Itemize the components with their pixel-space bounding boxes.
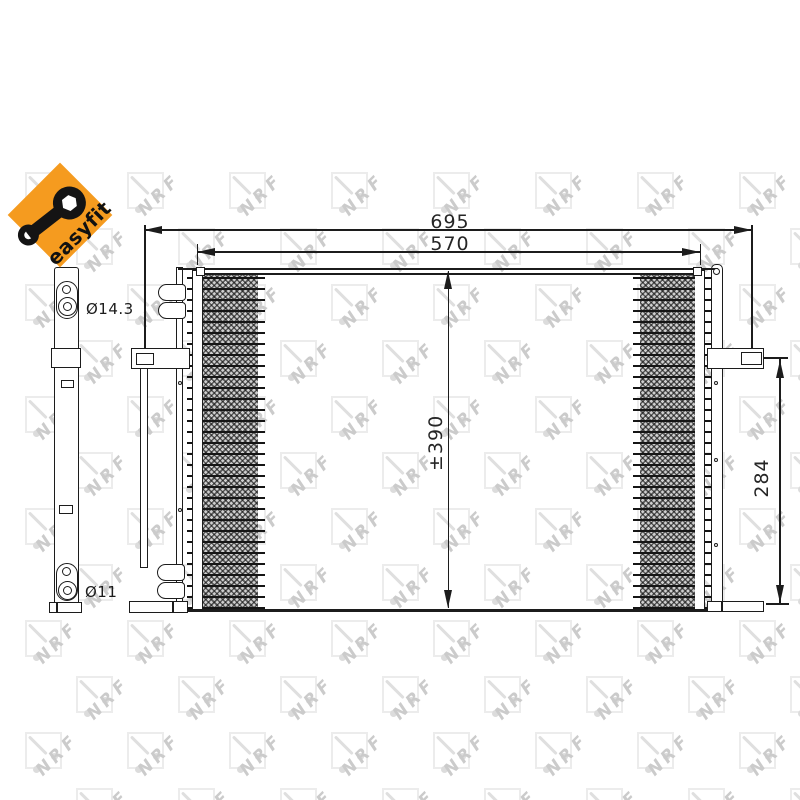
- dim-284-arrow-top: [776, 360, 784, 378]
- bracket-hole-right: [741, 352, 762, 365]
- dim-570-arrow-right: [682, 248, 700, 256]
- nrf-watermark-tile: N R F: [25, 620, 89, 676]
- dim-695-arrow-right: [734, 226, 752, 234]
- nrf-watermark-tile: N R F: [586, 788, 650, 800]
- nrf-watermark-tile: N R F: [280, 452, 344, 508]
- nrf-watermark-tile: N R F: [535, 508, 599, 564]
- dim-570-arrow-left: [197, 248, 215, 256]
- nrf-watermark-tile: N R F: [484, 564, 548, 620]
- nrf-watermark-tile: N R F: [484, 228, 548, 284]
- nrf-watermark-tile: N R F: [280, 228, 344, 284]
- nrf-watermark-tile: N R F: [790, 452, 800, 508]
- nrf-watermark-tile: N R F: [535, 620, 599, 676]
- nrf-watermark-tile: N R F: [739, 396, 800, 452]
- side-view-slot-upper: [61, 380, 74, 388]
- nrf-watermark-tile: N R F: [484, 340, 548, 396]
- nrf-watermark-tile: N R F: [331, 172, 395, 228]
- nrf-watermark-tile: N R F: [535, 284, 599, 340]
- nrf-watermark-tile: N R F: [688, 676, 752, 732]
- dim-284-ref-top: [763, 357, 788, 359]
- dim-695-extension-right: [751, 225, 753, 353]
- left-pipe: [140, 368, 148, 568]
- nrf-watermark-tile: N R F: [433, 620, 497, 676]
- nrf-watermark-tile: N R F: [484, 452, 548, 508]
- tube-weld-dot: [178, 381, 182, 385]
- end-cap-left: [196, 267, 205, 276]
- nrf-watermark-tile: N R F: [790, 228, 800, 284]
- dim-line-390: [448, 271, 450, 608]
- inlet-port-upper: [158, 284, 186, 301]
- nrf-watermark-tile: N R F: [790, 788, 800, 800]
- nrf-watermark-tile: N R F: [331, 284, 395, 340]
- core-bottom-edge: [178, 609, 718, 612]
- nrf-watermark-tile: N R F: [331, 620, 395, 676]
- nrf-watermark-tile: N R F: [229, 172, 293, 228]
- side-plate-right: [694, 270, 705, 611]
- nrf-watermark-tile: N R F: [331, 508, 395, 564]
- nrf-watermark-tile: N R F: [229, 732, 293, 788]
- dim-570-tick-right: [700, 244, 702, 265]
- drier-weld-dot: [714, 458, 718, 462]
- inlet-port-lower: [158, 302, 186, 319]
- nrf-watermark-tile: N R F: [76, 676, 140, 732]
- nrf-watermark-tile: N R F: [739, 620, 800, 676]
- dim-570-tick-left: [197, 244, 199, 265]
- bottom-port-diameter-label: Ø11: [85, 583, 117, 601]
- dim-line-284: [779, 359, 781, 604]
- foot-right-step: [721, 601, 723, 612]
- dim-695-arrow-left: [144, 226, 162, 234]
- dim-284-ref-bottom: [766, 603, 789, 605]
- core-top-edge: [178, 268, 718, 270]
- nrf-watermark-tile: N R F: [382, 788, 446, 800]
- nrf-watermark-tile: N R F: [280, 564, 344, 620]
- nrf-watermark-tile: N R F: [331, 396, 395, 452]
- nrf-watermark-tile: N R F: [382, 340, 446, 396]
- bottom-port-small-hole: [62, 567, 71, 576]
- nrf-watermark-tile: N R F: [637, 172, 701, 228]
- nrf-watermark-tile: N R F: [127, 732, 191, 788]
- dim-284-arrow-bottom: [776, 585, 784, 603]
- nrf-watermark-tile: N R F: [739, 508, 800, 564]
- nrf-watermark-tile: N R F: [535, 396, 599, 452]
- nrf-watermark-tile: N R F: [637, 732, 701, 788]
- nrf-watermark-tile: N R F: [280, 340, 344, 396]
- nrf-watermark-tile: N R F: [76, 452, 140, 508]
- tube-weld-dot: [178, 508, 182, 512]
- end-cap-right: [693, 267, 702, 276]
- nrf-watermark-tile: N R F: [382, 564, 446, 620]
- foot-left-step: [172, 601, 174, 613]
- nrf-watermark-tile: N R F: [280, 676, 344, 732]
- outlet-port-lower: [157, 582, 185, 599]
- outlet-port-upper: [157, 564, 185, 581]
- foot-left: [129, 601, 188, 613]
- core-top-inner-edge: [197, 273, 701, 275]
- drier-weld-dot: [714, 543, 718, 547]
- drier-top-hole: [713, 268, 720, 275]
- dim-284-label: 284: [751, 455, 773, 501]
- dim-390-arrow-bottom: [444, 590, 452, 608]
- side-view-foot-step: [56, 602, 58, 613]
- nrf-watermark-tile: N R F: [535, 732, 599, 788]
- condenser-technical-drawing: N R F N R F N R F N R F N R F: [0, 0, 800, 800]
- nrf-watermark-tile: N R F: [331, 732, 395, 788]
- nrf-watermark-tile: N R F: [382, 676, 446, 732]
- nrf-watermark-tile: N R F: [484, 788, 548, 800]
- nrf-watermark-tile: N R F: [790, 676, 800, 732]
- nrf-watermark-tile: N R F: [433, 732, 497, 788]
- side-view-foot: [49, 602, 82, 613]
- nrf-watermark-tile: N R F: [790, 340, 800, 396]
- nrf-watermark-tile: N R F: [433, 284, 497, 340]
- dim-695-extension-left: [144, 225, 146, 353]
- foot-right: [707, 601, 764, 612]
- top-port-diameter-label: Ø14.3: [86, 300, 134, 318]
- nrf-watermark-tile: N R F: [433, 508, 497, 564]
- nrf-watermark-tile: N R F: [637, 620, 701, 676]
- nrf-watermark-tile: N R F: [535, 172, 599, 228]
- side-view-slot-lower: [59, 505, 73, 514]
- nrf-watermark-tile: N R F: [178, 788, 242, 800]
- core-left: [203, 273, 258, 609]
- nrf-watermark-tile: N R F: [127, 172, 191, 228]
- dim-695-label: 695: [428, 211, 472, 233]
- nrf-watermark-tile: N R F: [25, 732, 89, 788]
- nrf-watermark-tile: N R F: [484, 676, 548, 732]
- nrf-watermark-tile: N R F: [739, 284, 800, 340]
- bottom-port-hole-inner: [63, 586, 72, 595]
- dim-570-label: 570: [428, 233, 472, 255]
- top-port-small-hole: [62, 285, 71, 294]
- dim-390-label: ±390: [425, 415, 447, 471]
- nrf-watermark-tile: N R F: [688, 788, 752, 800]
- side-view-bracket: [51, 348, 81, 368]
- nrf-watermark-tile: N R F: [790, 564, 800, 620]
- nrf-watermark-tile: N R F: [76, 788, 140, 800]
- side-plate-left: [192, 270, 203, 611]
- nrf-watermark-tile: N R F: [229, 620, 293, 676]
- drier-weld-dot: [714, 381, 718, 385]
- nrf-watermark-tile: N R F: [739, 732, 800, 788]
- nrf-watermark-tile: N R F: [280, 788, 344, 800]
- top-port-hole-inner: [63, 302, 72, 311]
- receiver-drier-right: [711, 264, 723, 603]
- nrf-watermark-tile: N R F: [586, 676, 650, 732]
- core-right: [640, 273, 695, 609]
- nrf-watermark-tile: N R F: [178, 676, 242, 732]
- nrf-watermark-tile: N R F: [739, 172, 800, 228]
- bracket-hole-left: [136, 353, 154, 365]
- nrf-watermark-tile: N R F: [127, 620, 191, 676]
